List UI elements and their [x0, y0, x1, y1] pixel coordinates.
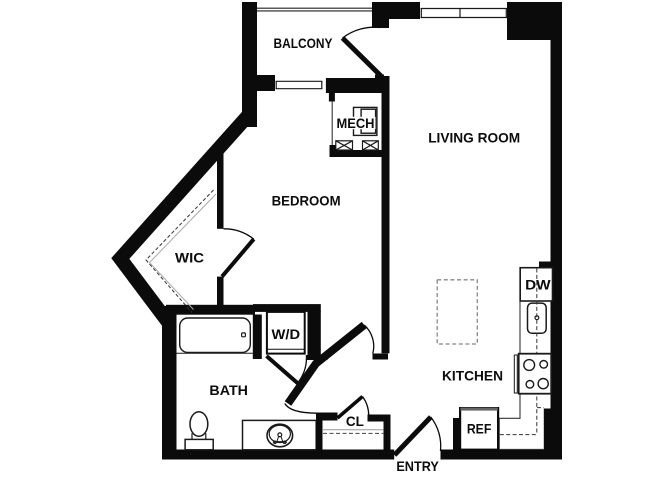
- svg-text:ENTRY: ENTRY: [396, 459, 439, 474]
- svg-text:KITCHEN: KITCHEN: [442, 369, 503, 384]
- svg-text:MECH: MECH: [337, 116, 375, 131]
- svg-text:BALCONY: BALCONY: [274, 36, 333, 51]
- svg-text:CL: CL: [346, 414, 364, 429]
- svg-text:LIVING ROOM: LIVING ROOM: [428, 130, 520, 145]
- svg-text:REF: REF: [467, 422, 492, 437]
- svg-text:DW: DW: [525, 278, 552, 293]
- svg-text:WIC: WIC: [175, 251, 204, 266]
- svg-text:W/D: W/D: [272, 327, 301, 342]
- svg-text:BEDROOM: BEDROOM: [272, 194, 341, 209]
- svg-text:BATH: BATH: [209, 383, 248, 398]
